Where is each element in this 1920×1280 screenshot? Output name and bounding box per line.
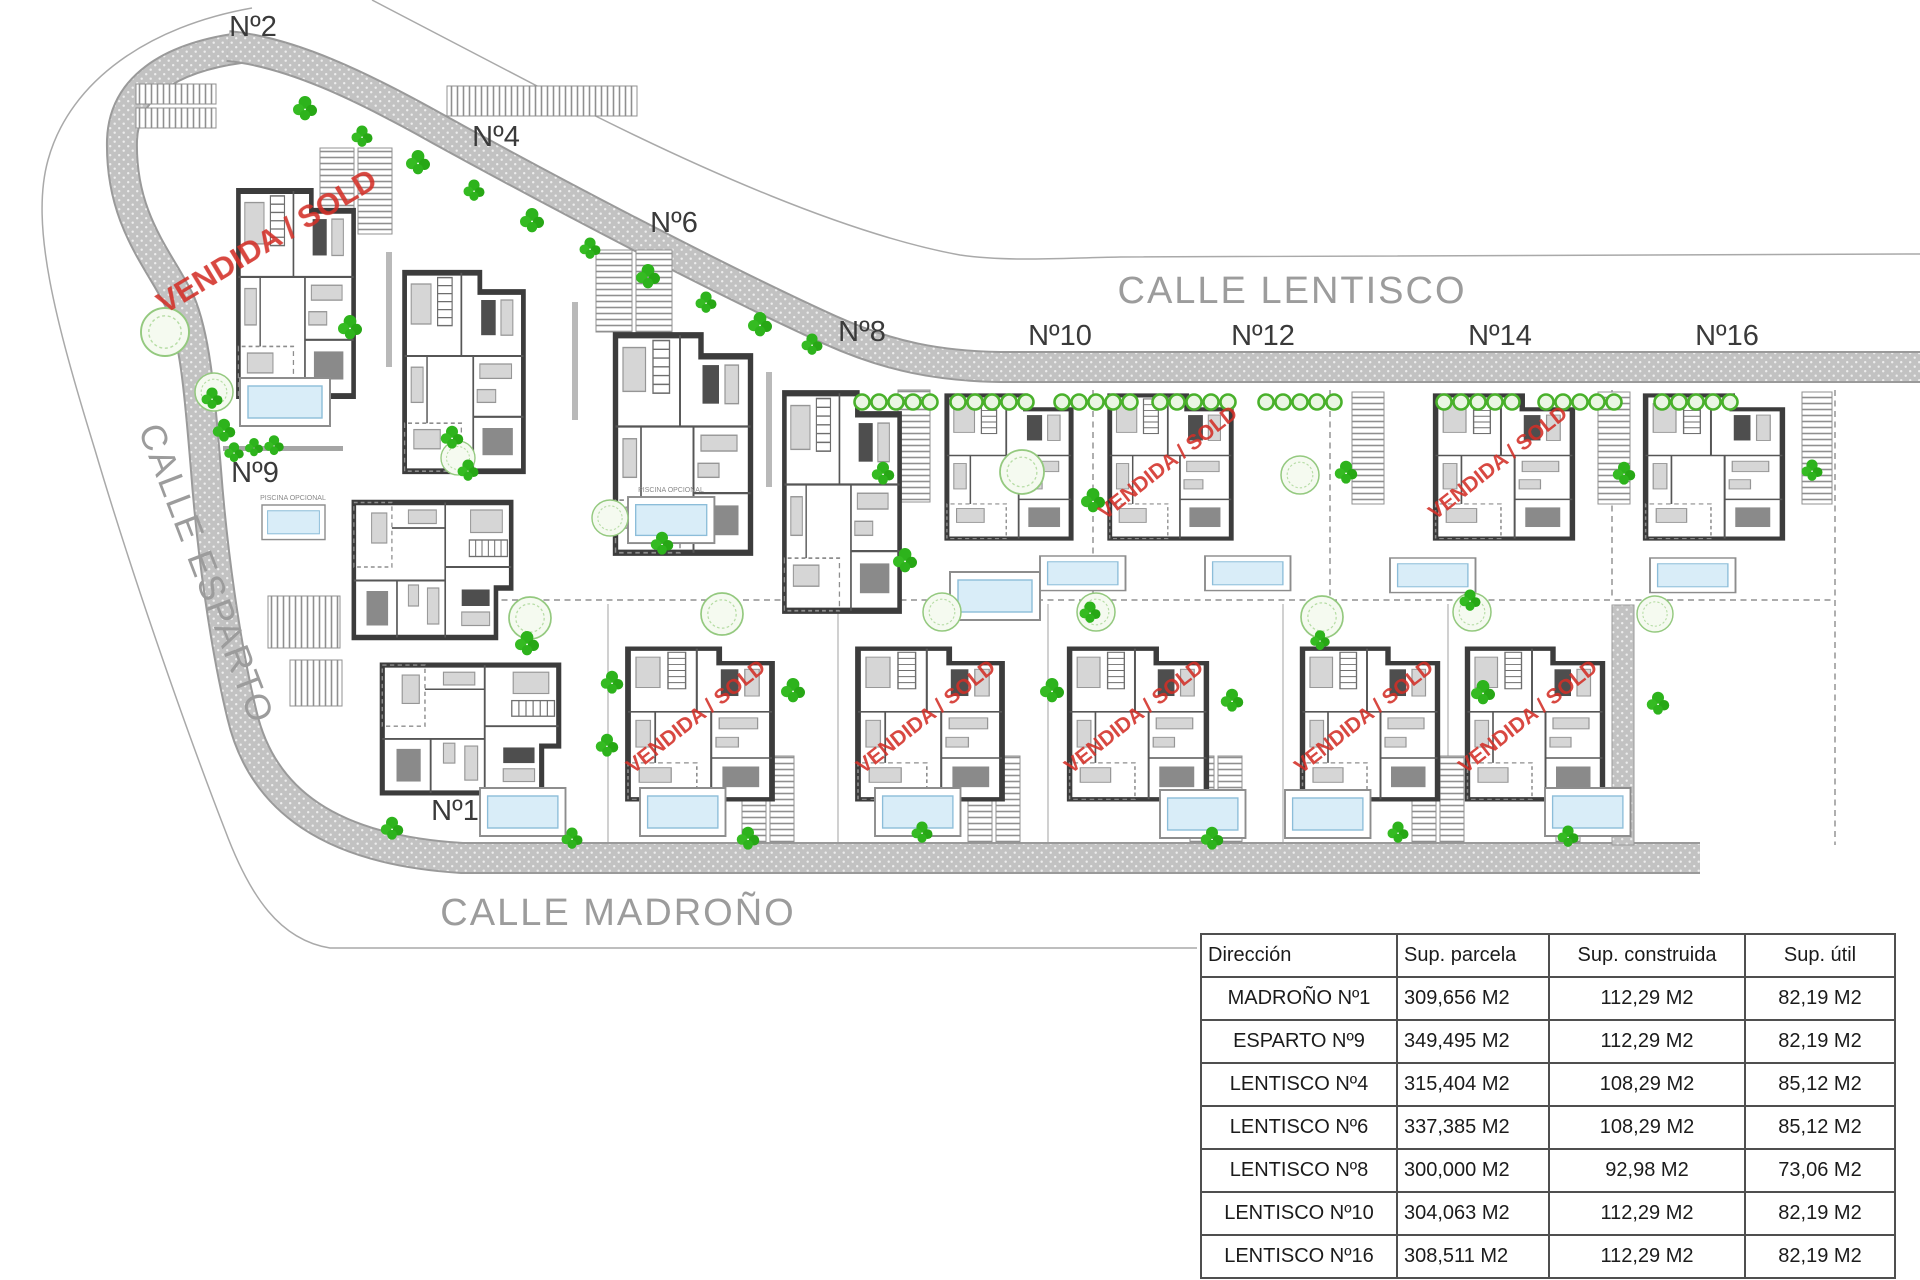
swimming-pool: [262, 505, 325, 540]
plot-label-n6: Nº6: [650, 207, 698, 239]
plot-label-n14: Nº14: [1468, 320, 1532, 352]
cell-direccion: LENTISCO Nº16: [1201, 1235, 1397, 1278]
plot-label-n9: Nº9: [231, 457, 279, 489]
swimming-pool: [950, 572, 1040, 620]
cell-construida: 92,98 M2: [1549, 1149, 1745, 1192]
cell-construida: 108,29 M2: [1549, 1063, 1745, 1106]
cell-util: 82,19 M2: [1745, 1020, 1895, 1063]
swimming-pool: [1285, 790, 1371, 838]
table-row: MADROÑO Nº1 309,656 M2 112,29 M2 82,19 M…: [1201, 977, 1895, 1020]
cell-construida: 108,29 M2: [1549, 1106, 1745, 1149]
cell-construida: 112,29 M2: [1549, 1192, 1745, 1235]
swimming-pool: [1205, 556, 1291, 591]
cell-parcela: 337,385 M2: [1397, 1106, 1549, 1149]
cell-util: 85,12 M2: [1745, 1106, 1895, 1149]
plot-label-n12: Nº12: [1231, 320, 1295, 352]
header-sup-util: Sup. útil: [1745, 934, 1895, 977]
cell-direccion: LENTISCO Nº6: [1201, 1106, 1397, 1149]
street-label-calle-madrono: CALLE MADROÑO: [440, 891, 795, 934]
swimming-pool: [640, 788, 726, 836]
swimming-pool: [1160, 790, 1246, 838]
header-sup-parcela: Sup. parcela: [1397, 934, 1549, 977]
cell-util: 73,06 M2: [1745, 1149, 1895, 1192]
plot-label-n2: Nº2: [229, 11, 277, 43]
cell-util: 82,19 M2: [1745, 1192, 1895, 1235]
plot-label-n10: Nº10: [1028, 320, 1092, 352]
swimming-pool: [1040, 556, 1126, 591]
swimming-pool: [480, 788, 566, 836]
cell-util: 82,19 M2: [1745, 1235, 1895, 1278]
plot-label-n16: Nº16: [1695, 320, 1759, 352]
swimming-pool: [1390, 558, 1476, 593]
plot-label-n4: Nº4: [472, 121, 520, 153]
cell-direccion: LENTISCO Nº10: [1201, 1192, 1397, 1235]
header-sup-construida: Sup. construida: [1549, 934, 1745, 977]
villa-n9: [354, 503, 511, 638]
table-row: LENTISCO Nº8 300,000 M2 92,98 M2 73,06 M…: [1201, 1149, 1895, 1192]
cell-parcela: 304,063 M2: [1397, 1192, 1549, 1235]
cell-construida: 112,29 M2: [1549, 1235, 1745, 1278]
villa-n16: [1646, 395, 1783, 538]
cell-util: 82,19 M2: [1745, 977, 1895, 1020]
cell-construida: 112,29 M2: [1549, 1020, 1745, 1063]
cell-direccion: LENTISCO Nº8: [1201, 1149, 1397, 1192]
pool-optional-label: PISCINA OPCIONAL: [638, 487, 704, 494]
pool-optional-label: PISCINA OPCIONAL: [260, 495, 326, 502]
cell-direccion: ESPARTO Nº9: [1201, 1020, 1397, 1063]
swimming-pool: [1650, 558, 1736, 593]
swimming-pool: [628, 497, 714, 543]
cell-construida: 112,29 M2: [1549, 977, 1745, 1020]
plot-label-n8: Nº8: [838, 316, 886, 348]
table-row: ESPARTO Nº9 349,495 M2 112,29 M2 82,19 M…: [1201, 1020, 1895, 1063]
cell-parcela: 309,656 M2: [1397, 977, 1549, 1020]
surface-areas-table: Dirección Sup. parcela Sup. construida S…: [1200, 933, 1896, 1279]
table-row: LENTISCO Nº10 304,063 M2 112,29 M2 82,19…: [1201, 1192, 1895, 1235]
cell-parcela: 315,404 M2: [1397, 1063, 1549, 1106]
table-row: LENTISCO Nº6 337,385 M2 108,29 M2 85,12 …: [1201, 1106, 1895, 1149]
cell-util: 85,12 M2: [1745, 1063, 1895, 1106]
cell-parcela: 300,000 M2: [1397, 1149, 1549, 1192]
table-row: LENTISCO Nº4 315,404 M2 108,29 M2 85,12 …: [1201, 1063, 1895, 1106]
cell-direccion: MADROÑO Nº1: [1201, 977, 1397, 1020]
swimming-pool: [1545, 788, 1631, 836]
cell-parcela: 308,511 M2: [1397, 1235, 1549, 1278]
swimming-pool: [240, 378, 330, 426]
cell-parcela: 349,495 M2: [1397, 1020, 1549, 1063]
villa-n1: [382, 665, 558, 793]
table-row: LENTISCO Nº16 308,511 M2 112,29 M2 82,19…: [1201, 1235, 1895, 1278]
villa-n8: [784, 393, 899, 610]
site-plan-page: PISCINA OPCIONAL PISCINA OPCIONAL: [0, 0, 1920, 1280]
header-direccion: Dirección: [1201, 934, 1397, 977]
street-label-calle-lentisco: CALLE LENTISCO: [1118, 270, 1467, 312]
cell-direccion: LENTISCO Nº4: [1201, 1063, 1397, 1106]
table-header-row: Dirección Sup. parcela Sup. construida S…: [1201, 934, 1895, 977]
plot-label-n1: Nº1: [431, 795, 479, 827]
